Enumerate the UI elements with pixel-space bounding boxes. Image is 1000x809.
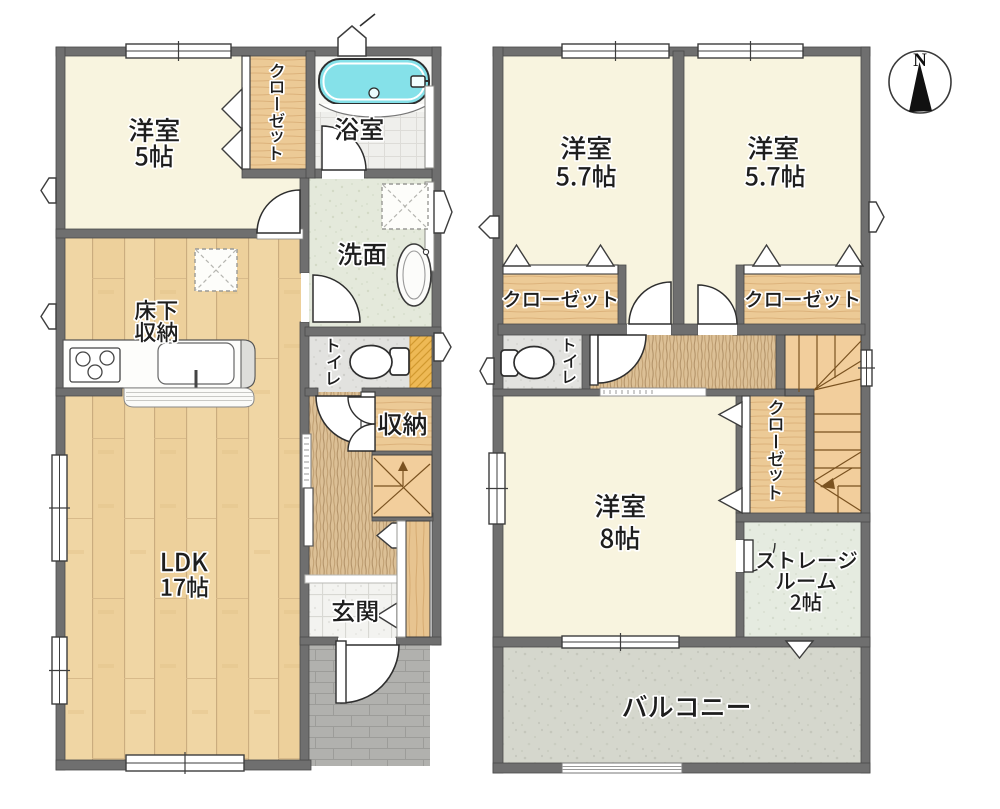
svg-text:N: N xyxy=(913,50,927,71)
